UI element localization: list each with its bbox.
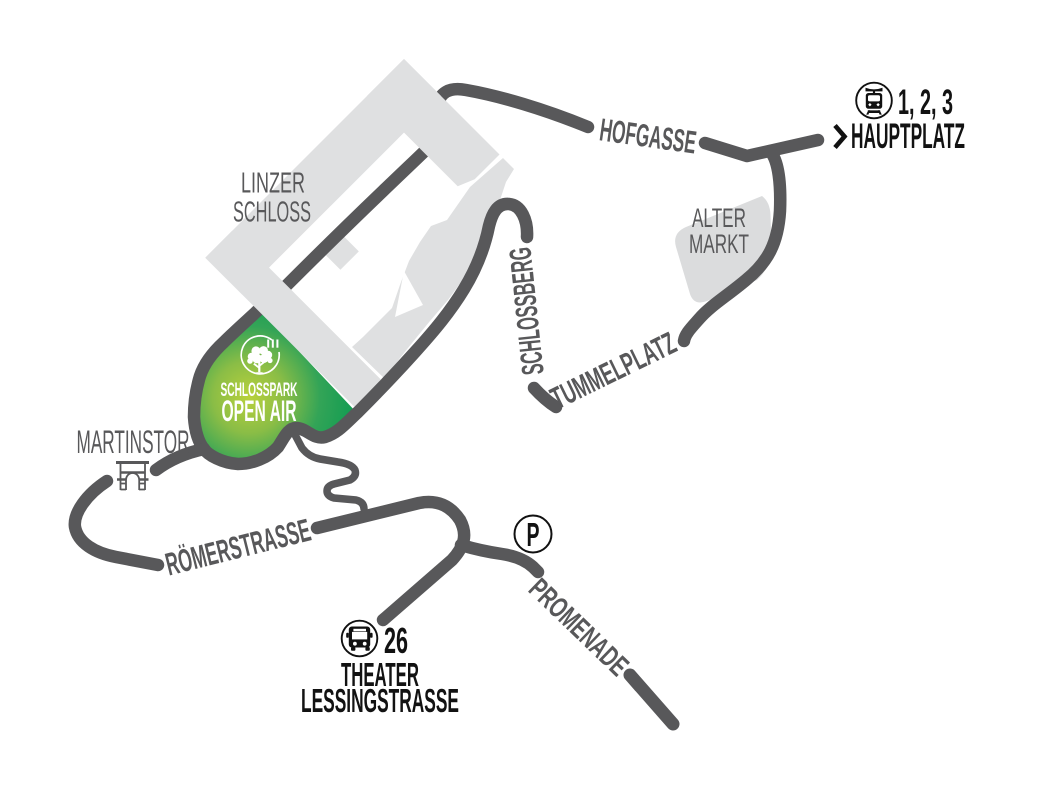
svg-text:SCHLOSSBERG: SCHLOSSBERG bbox=[502, 246, 550, 377]
svg-text:26: 26 bbox=[384, 620, 408, 661]
svg-text:MARKT: MARKT bbox=[689, 229, 749, 259]
svg-text:LESSINGSTRASSE: LESSINGSTRASSE bbox=[301, 682, 459, 719]
svg-text:TUMMELPLATZ: TUMMELPLATZ bbox=[545, 325, 682, 416]
svg-text:MARTINSTOR: MARTINSTOR bbox=[77, 424, 190, 460]
svg-text:HOFGASSE: HOFGASSE bbox=[597, 111, 698, 160]
svg-text:PROMENADE: PROMENADE bbox=[522, 573, 634, 683]
svg-text:P: P bbox=[527, 516, 540, 553]
svg-text:HAUPTPLATZ: HAUPTPLATZ bbox=[851, 117, 965, 156]
svg-text:LINZER: LINZER bbox=[241, 168, 305, 200]
svg-text:RÖMERSTRASSE: RÖMERSTRASSE bbox=[162, 512, 314, 583]
svg-text:1, 2, 3: 1, 2, 3 bbox=[898, 83, 953, 122]
svg-text:SCHLOSS: SCHLOSS bbox=[233, 197, 311, 229]
svg-text:OPEN AIR: OPEN AIR bbox=[222, 395, 297, 428]
